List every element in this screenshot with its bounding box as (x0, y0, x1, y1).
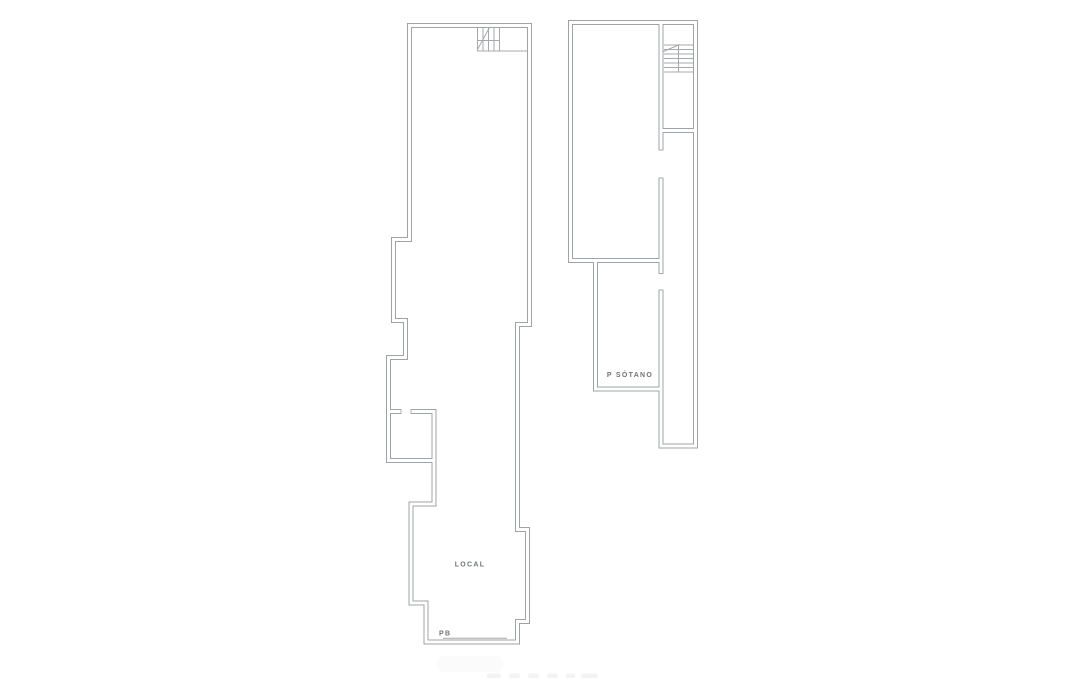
floorplan-page: LOCAL PB P SÓTANO (0, 0, 1070, 680)
pb-door-jamb-caps (401, 409, 411, 414)
watermark-artifact (437, 656, 598, 678)
watermark-dash (487, 674, 501, 679)
pb-stair-treads (478, 28, 500, 51)
watermark-dash (528, 674, 539, 679)
floorplan-drawing: LOCAL PB P SÓTANO (0, 0, 1070, 680)
watermark-dash (566, 674, 575, 679)
watermark-dash (581, 674, 598, 679)
sotano-stair-direction-line (664, 45, 680, 52)
sotano-staircase (664, 45, 694, 73)
sotano-floor-label: P SÓTANO (607, 370, 653, 379)
walls-inner-stroke (389, 23, 696, 643)
walls-outer-stroke (389, 23, 696, 643)
plan-labels: LOCAL PB P SÓTANO (439, 370, 653, 638)
watermark-dash (547, 674, 558, 679)
pb-space-label: LOCAL (455, 562, 486, 569)
pb-staircase (478, 28, 528, 52)
watermark-blob (437, 656, 503, 672)
thin-line-details (401, 28, 693, 639)
watermark-dash (509, 674, 520, 679)
pb-floor-label: PB (439, 631, 451, 638)
watermark-dashes (487, 674, 598, 679)
